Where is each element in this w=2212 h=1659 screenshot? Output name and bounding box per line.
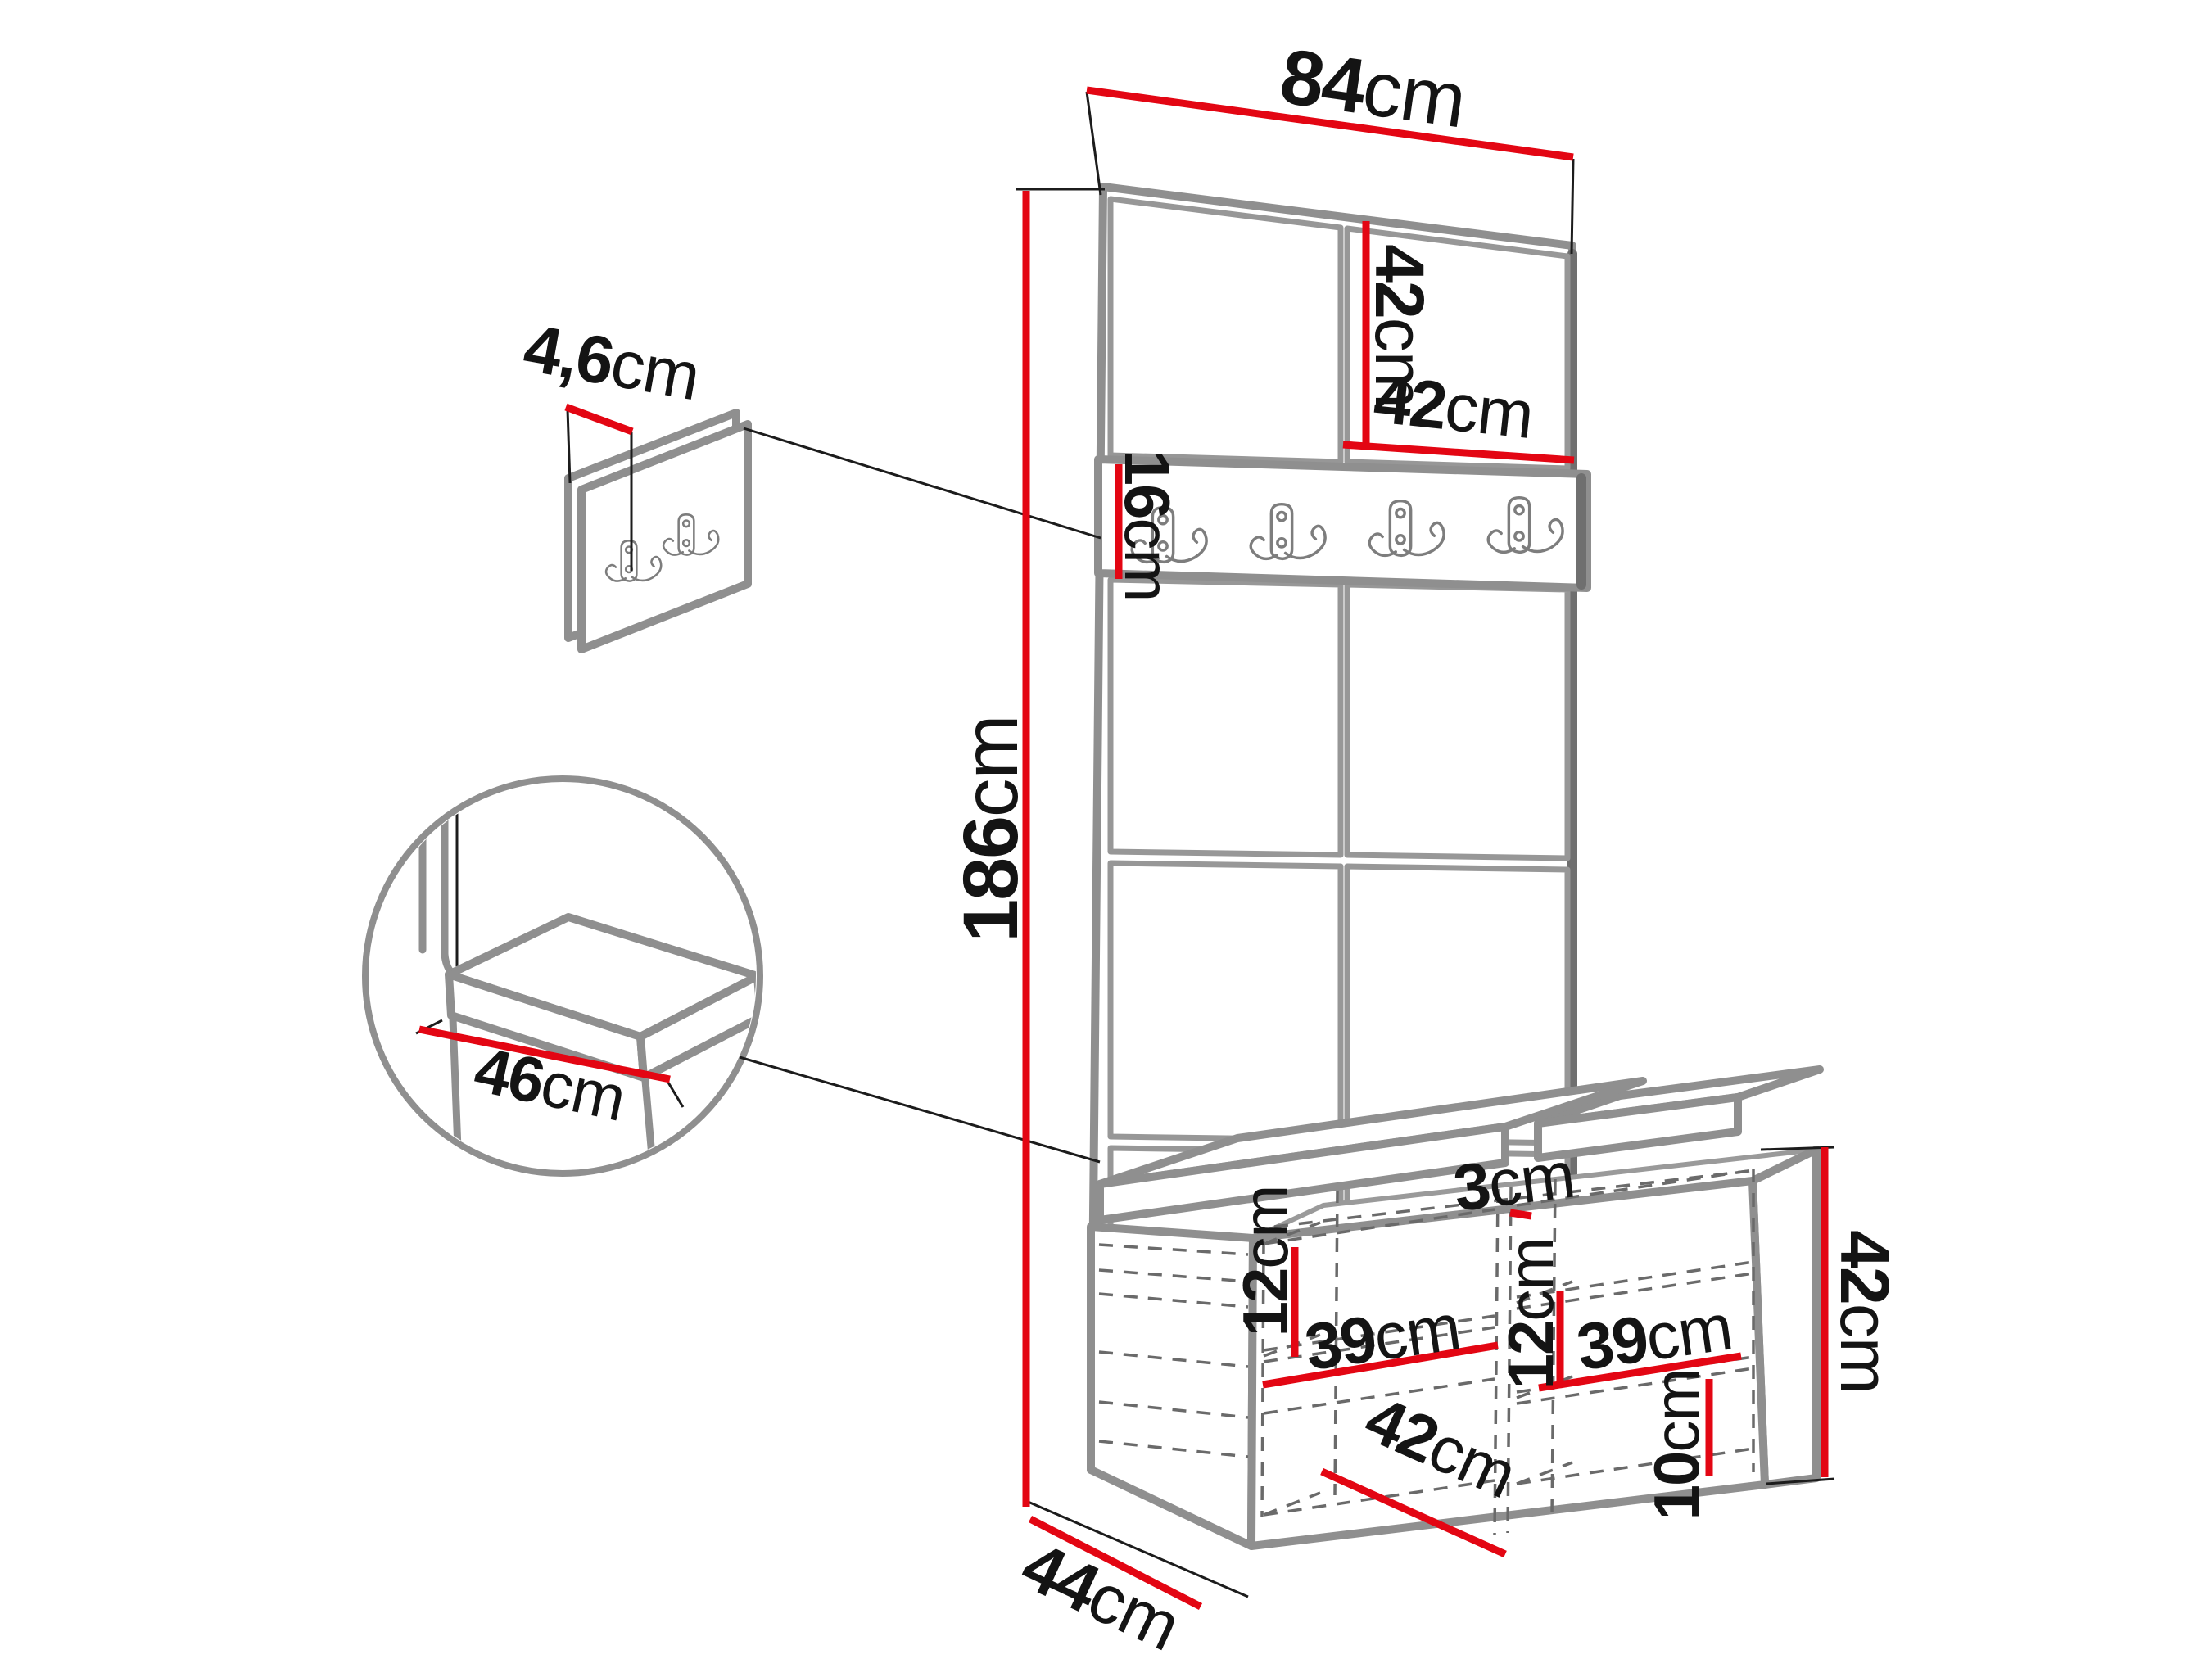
panel-tile [1111,580,1341,855]
technical-drawing: 46cm [0,0,2212,1659]
dim-label-rail-height: 16cm [1111,450,1183,602]
dim-extension [1572,159,1573,254]
dim-label-right-shelf-drop: 12cm [1495,1238,1567,1390]
drawing-canvas: 46cm [0,0,2212,1659]
panel-tile [1347,585,1567,858]
leader-line-hook-panel [744,428,1101,538]
dim-extension [568,409,570,483]
dim-label-total-height: 186cm [948,715,1034,942]
dim-label-bench-height: 42cm [1826,1230,1903,1393]
dim-label-cushion-gap: 3cm [1450,1138,1578,1225]
panel-tile [1111,199,1341,462]
dim-label-bench-depth: 44cm [1011,1526,1191,1659]
dim-label-panel-thickness: 4,6cm [518,310,705,414]
dim-label-bottom-gap: 10cm [1640,1369,1712,1521]
dim-line-panel-thickness [566,407,632,432]
dim-extension [1087,92,1101,195]
dim-label-left-shelf-drop: 12cm [1229,1186,1301,1337]
dim-label-top-width: 84cm [1275,33,1471,144]
wall-hook-panel-front [581,424,748,649]
detail-circle: 46cm [365,770,761,1175]
leader-line-seat-detail [740,1057,1100,1162]
panel-tile [1111,863,1341,1140]
wall-hook-panel [568,413,748,649]
